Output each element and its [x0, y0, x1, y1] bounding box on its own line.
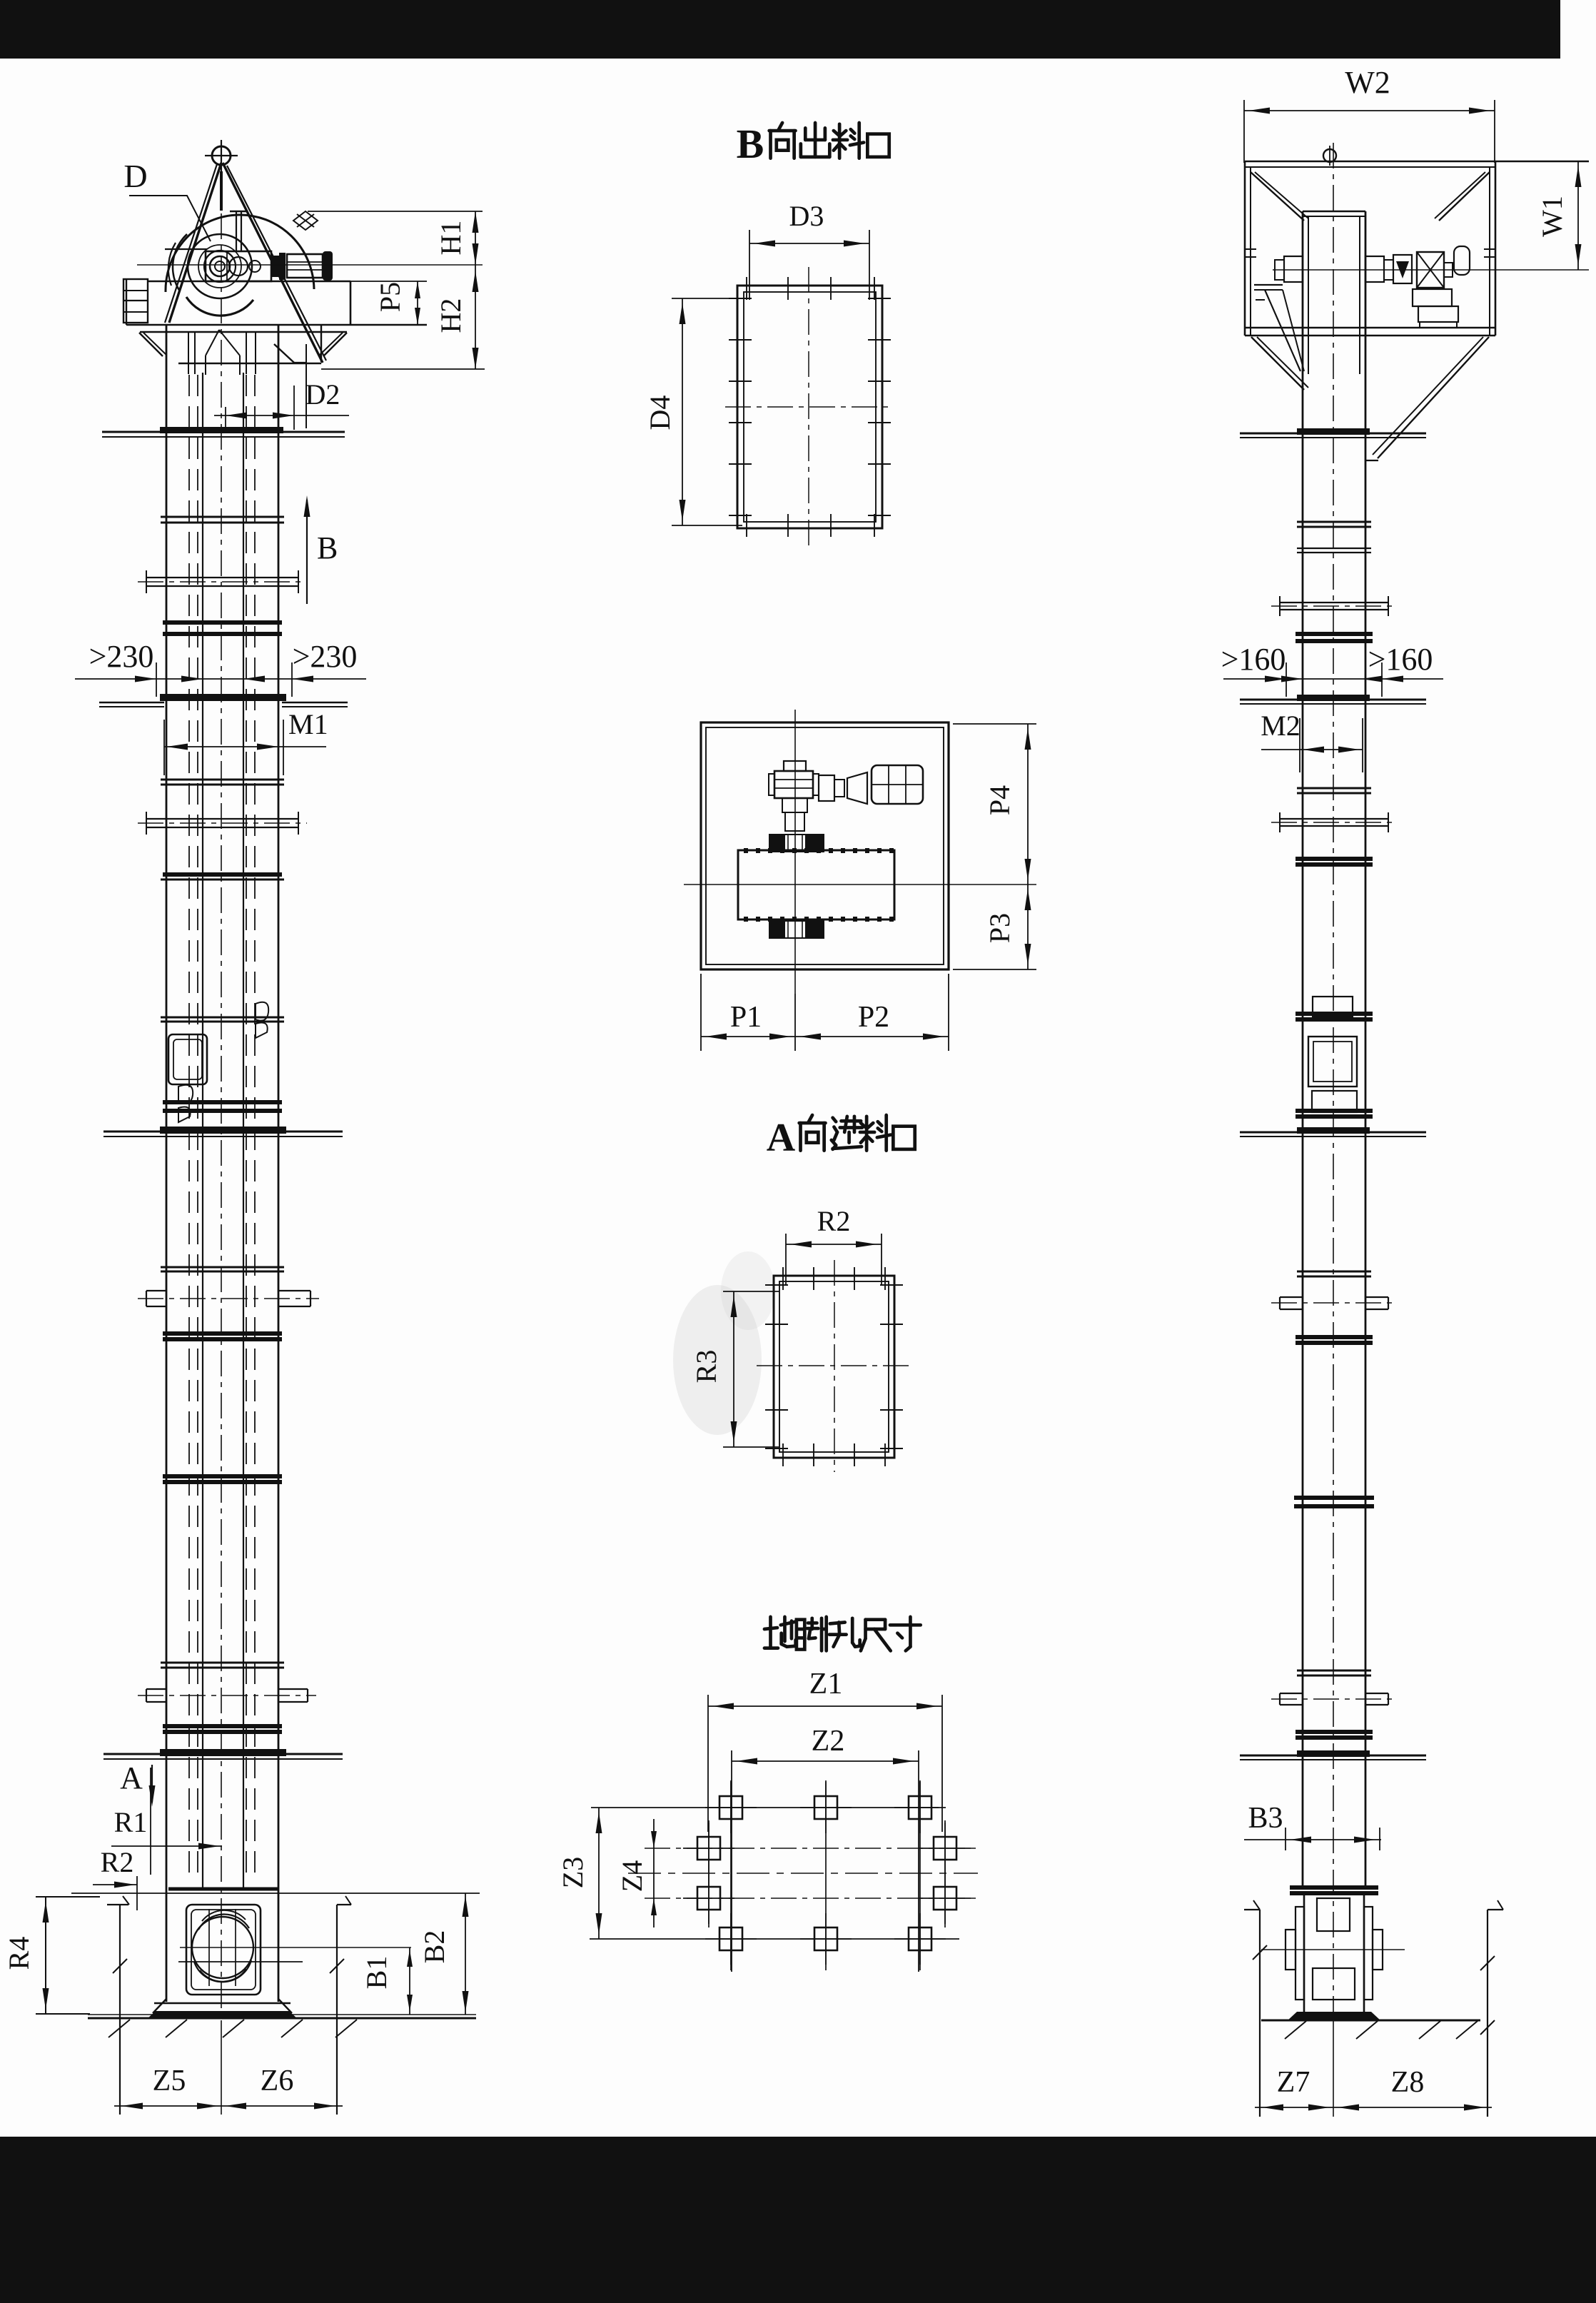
svg-text:R1: R1	[114, 1806, 148, 1838]
svg-text:D: D	[123, 158, 147, 194]
svg-text:P5: P5	[374, 282, 406, 312]
svg-text:Z6: Z6	[261, 2065, 294, 2097]
svg-text:W1: W1	[1536, 196, 1568, 237]
svg-text:B3: B3	[1248, 1802, 1283, 1835]
svg-text:Z7: Z7	[1277, 2066, 1310, 2099]
svg-text:Z5: Z5	[153, 2065, 186, 2097]
svg-text:>160: >160	[1368, 642, 1433, 677]
svg-text:R4: R4	[3, 1937, 35, 1970]
svg-text:B2: B2	[418, 1930, 450, 1964]
svg-text:W2: W2	[1345, 65, 1390, 100]
svg-text:D2: D2	[305, 378, 340, 410]
svg-text:Z4: Z4	[616, 1860, 648, 1892]
svg-text:D3: D3	[789, 200, 824, 232]
svg-text:Z8: Z8	[1391, 2066, 1425, 2099]
svg-text:H1: H1	[435, 221, 467, 256]
svg-text:P4: P4	[984, 785, 1016, 815]
svg-text:P1: P1	[730, 1001, 762, 1034]
svg-text:Z3: Z3	[557, 1857, 589, 1888]
svg-text:M1: M1	[288, 708, 328, 740]
svg-text:D4: D4	[644, 395, 676, 430]
svg-text:P2: P2	[858, 1001, 889, 1034]
svg-text:B: B	[737, 121, 764, 167]
svg-text:A: A	[767, 1116, 796, 1160]
svg-text:P3: P3	[984, 913, 1016, 943]
svg-text:B1: B1	[360, 1956, 393, 1990]
svg-text:A: A	[120, 1760, 143, 1795]
svg-text:>230: >230	[89, 639, 154, 674]
svg-text:R2: R2	[101, 1846, 134, 1878]
svg-text:Z1: Z1	[809, 1668, 843, 1700]
svg-text:B: B	[317, 530, 338, 565]
svg-text:R2: R2	[817, 1205, 851, 1237]
svg-text:>230: >230	[293, 639, 358, 674]
svg-text:Z2: Z2	[812, 1725, 845, 1758]
svg-text:R3: R3	[690, 1350, 722, 1384]
svg-text:M2: M2	[1261, 710, 1300, 742]
svg-text:>160: >160	[1221, 642, 1286, 677]
svg-text:H2: H2	[435, 298, 467, 333]
